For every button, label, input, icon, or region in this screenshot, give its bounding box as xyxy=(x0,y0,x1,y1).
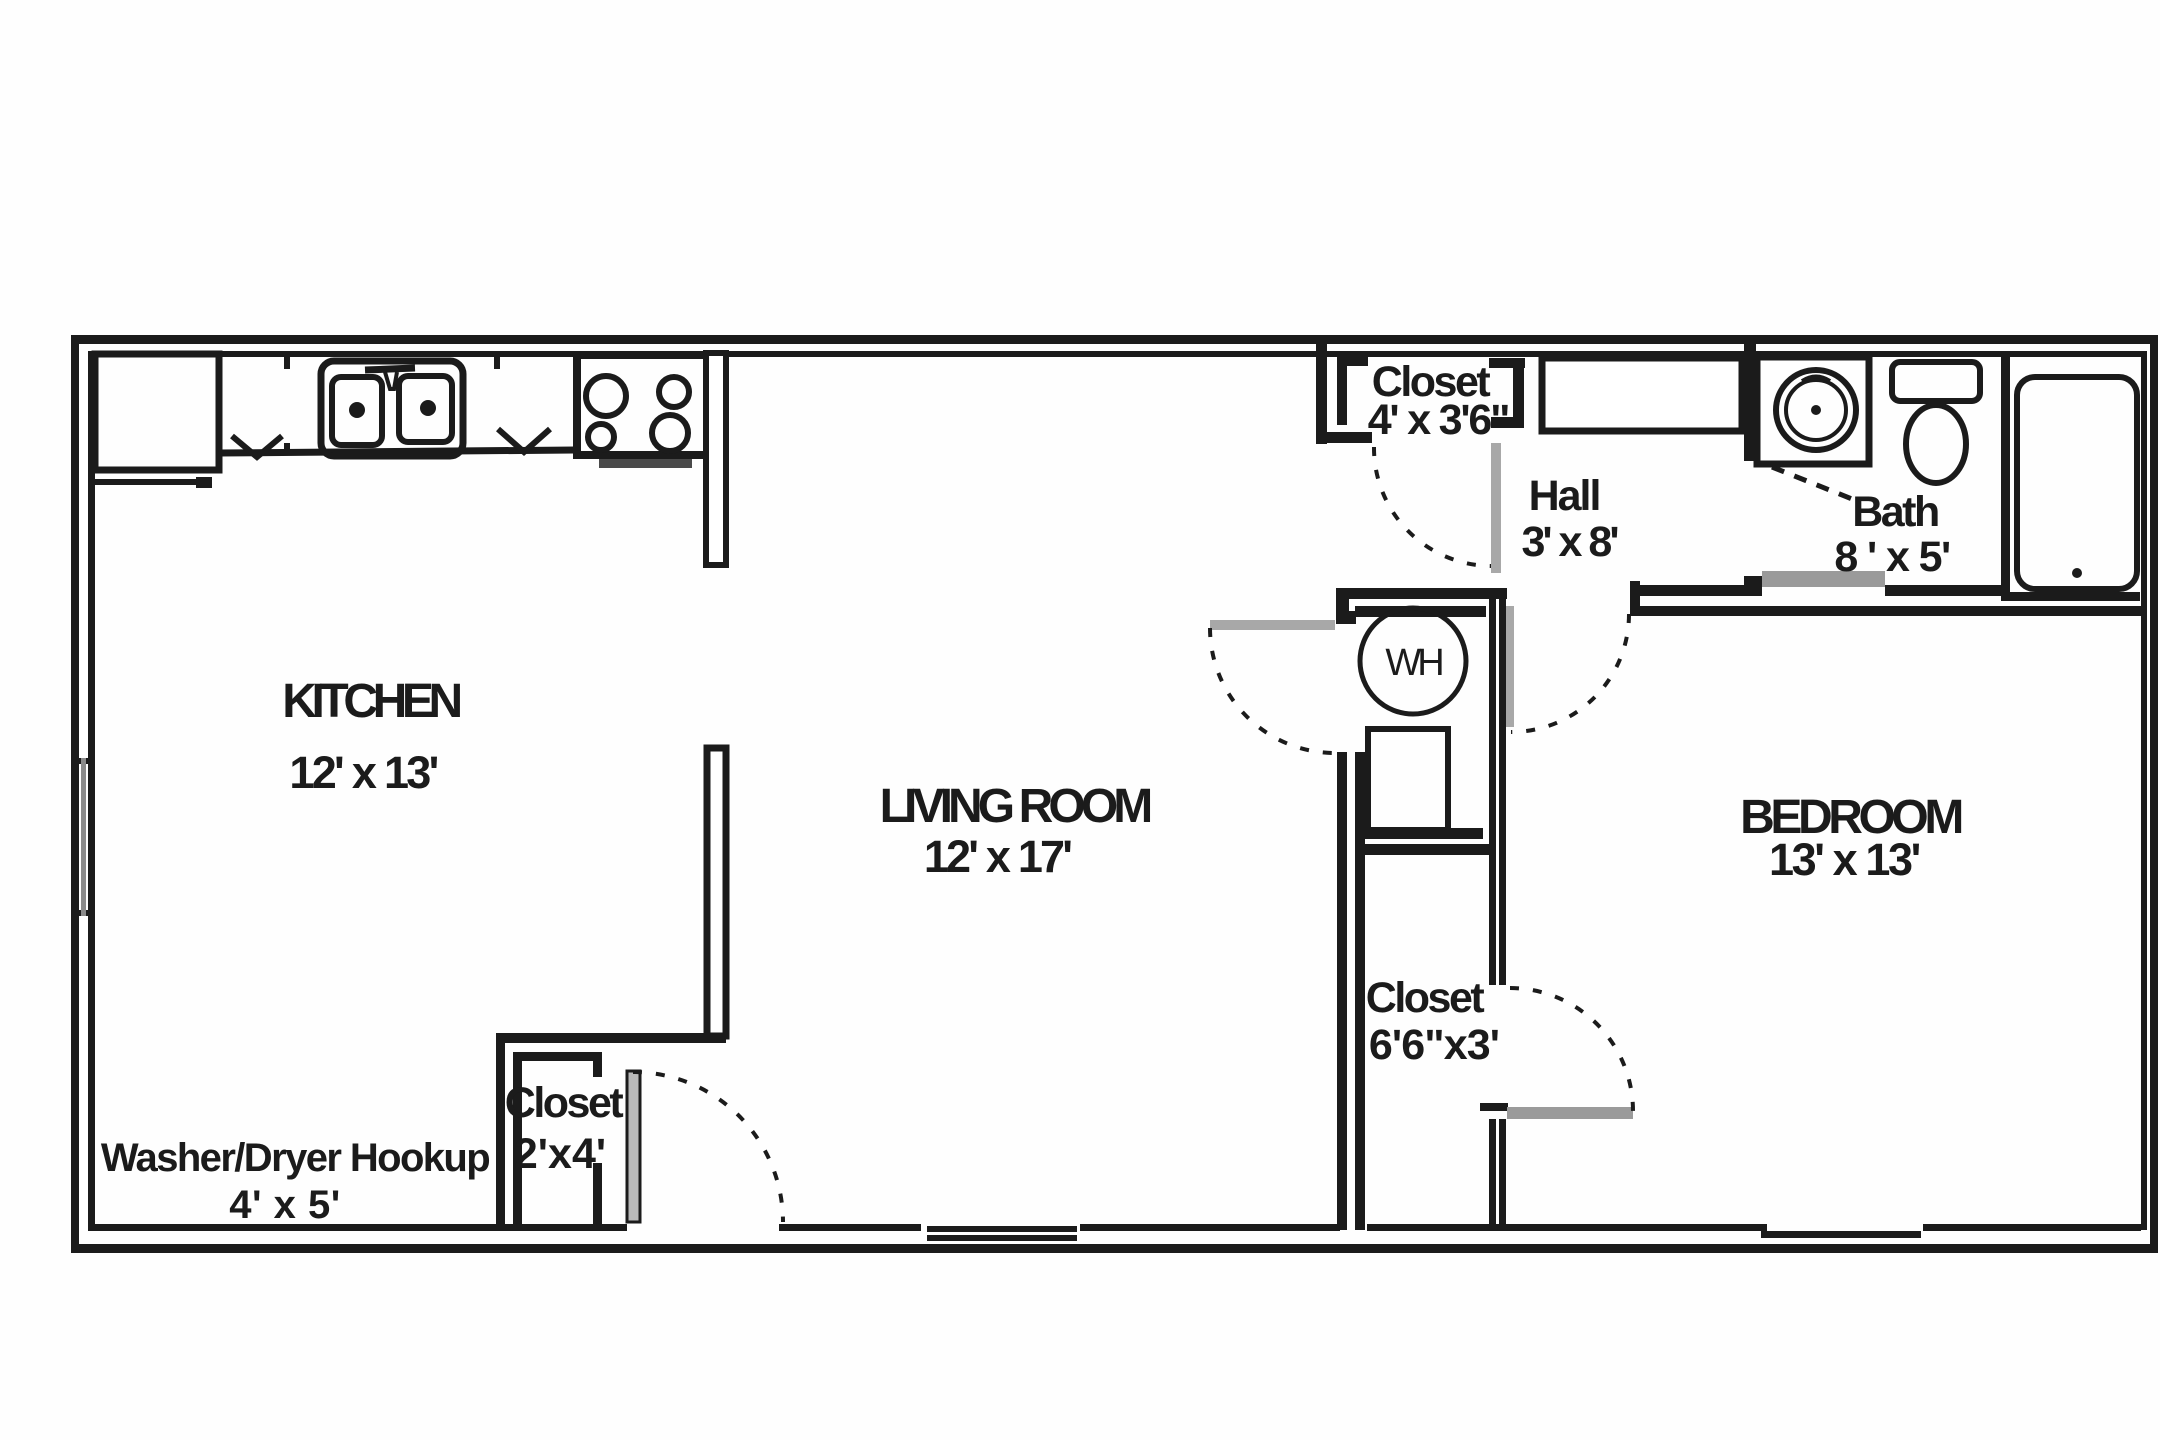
svg-text:Closet: Closet xyxy=(505,1079,624,1127)
svg-text:Bath: Bath xyxy=(1852,488,1938,536)
svg-text:13' x 13': 13' x 13' xyxy=(1769,834,1920,885)
svg-text:Hall: Hall xyxy=(1529,472,1600,520)
svg-text:KITCHEN: KITCHEN xyxy=(282,675,460,728)
svg-text:WH: WH xyxy=(1385,642,1442,684)
svg-text:4' x 5': 4' x 5' xyxy=(229,1183,341,1227)
svg-text:4' x 3'6": 4' x 3'6" xyxy=(1368,396,1509,444)
svg-text:Closet: Closet xyxy=(1366,974,1485,1022)
svg-text:6'6"x3': 6'6"x3' xyxy=(1369,1021,1499,1069)
svg-text:12' x 17': 12' x 17' xyxy=(924,831,1071,882)
svg-text:12' x 13': 12' x 13' xyxy=(289,747,437,798)
svg-text:8 ' x 5': 8 ' x 5' xyxy=(1834,533,1949,581)
svg-text:LIVING ROOM: LIVING ROOM xyxy=(880,780,1151,833)
svg-text:2'x4': 2'x4' xyxy=(514,1130,606,1178)
svg-text:Washer/Dryer Hookup: Washer/Dryer Hookup xyxy=(101,1136,489,1180)
svg-text:3' x 8': 3' x 8' xyxy=(1521,518,1617,566)
